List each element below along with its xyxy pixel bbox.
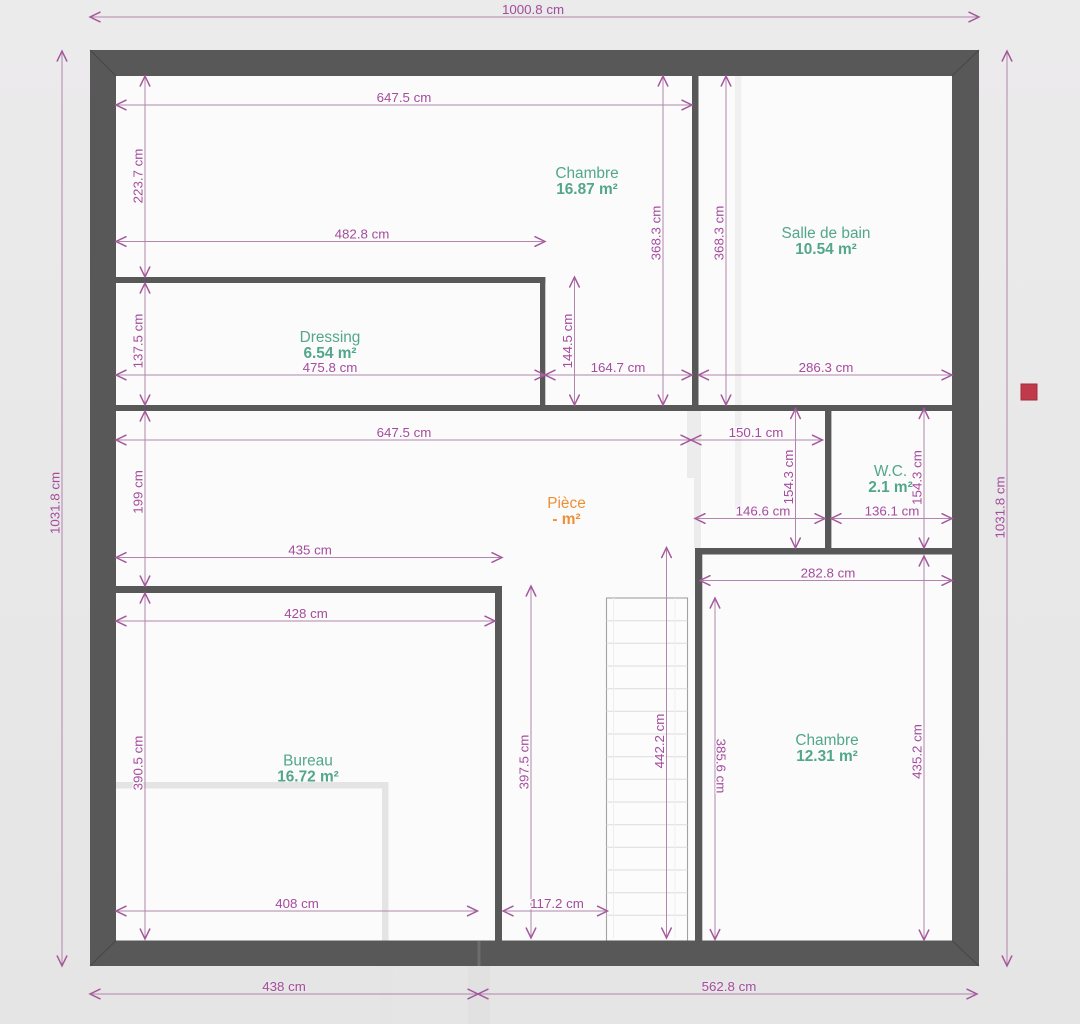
svg-text:Salle de bain: Salle de bain	[782, 225, 871, 242]
svg-text:136.1 cm: 136.1 cm	[865, 504, 920, 519]
svg-text:562.8 cm: 562.8 cm	[702, 979, 757, 994]
svg-text:Pièce: Pièce	[547, 495, 586, 512]
svg-text:146.6 cm: 146.6 cm	[736, 504, 791, 519]
svg-text:385.6 cm: 385.6 cm	[714, 739, 729, 794]
svg-text:117.2 cm: 117.2 cm	[530, 896, 584, 911]
svg-text:1031.8 cm: 1031.8 cm	[47, 472, 62, 534]
svg-text:12.31 m²: 12.31 m²	[796, 748, 858, 765]
svg-text:Chambre: Chambre	[795, 732, 858, 749]
svg-text:199 cm: 199 cm	[130, 470, 145, 514]
svg-text:10.54 m²: 10.54 m²	[795, 241, 857, 258]
svg-text:368.3 cm: 368.3 cm	[648, 206, 663, 261]
svg-text:223.7 cm: 223.7 cm	[130, 149, 145, 204]
svg-text:647.5 cm: 647.5 cm	[377, 425, 432, 440]
svg-text:428 cm: 428 cm	[284, 606, 328, 621]
svg-text:2.1 m²: 2.1 m²	[868, 479, 912, 496]
svg-text:150.1 cm: 150.1 cm	[729, 425, 784, 440]
svg-text:154.3 cm: 154.3 cm	[909, 450, 924, 505]
svg-text:475.8 cm: 475.8 cm	[303, 360, 358, 375]
svg-text:408 cm: 408 cm	[275, 896, 319, 911]
svg-text:154.3 cm: 154.3 cm	[781, 450, 796, 505]
svg-text:W.C.: W.C.	[874, 463, 907, 480]
svg-text:Bureau: Bureau	[283, 753, 333, 770]
svg-text:137.5 cm: 137.5 cm	[130, 314, 145, 369]
svg-text:397.5 cm: 397.5 cm	[516, 735, 531, 790]
svg-text:6.54 m²: 6.54 m²	[303, 345, 356, 362]
svg-text:286.3 cm: 286.3 cm	[799, 360, 854, 375]
svg-text:1031.8 cm: 1031.8 cm	[992, 476, 1007, 538]
svg-text:Dressing: Dressing	[300, 329, 361, 346]
svg-text:144.5 cm: 144.5 cm	[560, 314, 575, 369]
svg-text:647.5 cm: 647.5 cm	[377, 90, 432, 105]
svg-text:164.7 cm: 164.7 cm	[591, 360, 646, 375]
svg-text:368.3 cm: 368.3 cm	[711, 206, 726, 261]
svg-text:442.2 cm: 442.2 cm	[652, 714, 667, 769]
svg-text:435.2 cm: 435.2 cm	[909, 724, 924, 779]
svg-text:16.72 m²: 16.72 m²	[277, 769, 339, 786]
svg-text:1000.8 cm: 1000.8 cm	[502, 2, 564, 17]
svg-text:282.8 cm: 282.8 cm	[801, 566, 856, 581]
svg-text:435 cm: 435 cm	[288, 543, 332, 558]
svg-text:438 cm: 438 cm	[262, 979, 306, 994]
svg-text:482.8 cm: 482.8 cm	[335, 227, 390, 242]
svg-text:16.87 m²: 16.87 m²	[556, 181, 618, 198]
svg-text:Chambre: Chambre	[555, 165, 618, 182]
svg-text:- m²: - m²	[552, 511, 580, 528]
svg-text:390.5 cm: 390.5 cm	[130, 736, 145, 791]
